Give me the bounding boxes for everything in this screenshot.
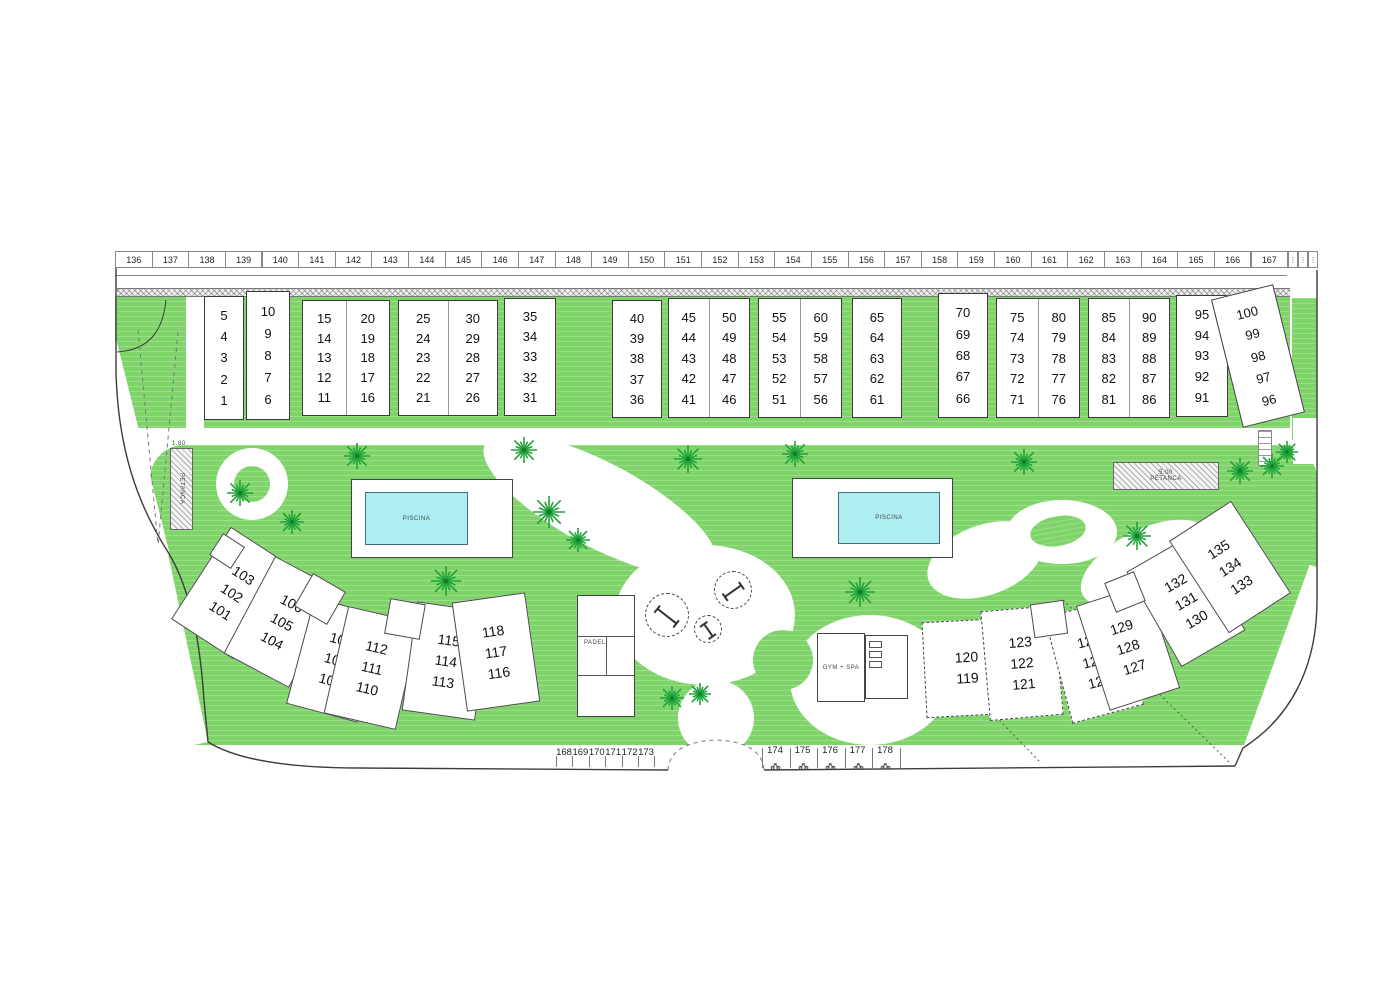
parking-row-underline <box>115 275 1287 276</box>
unit-number: 24 <box>416 332 430 345</box>
unit-number: 12 <box>317 371 331 384</box>
unit-number: 19 <box>361 332 375 345</box>
unit-number: 72 <box>1010 372 1024 385</box>
unit-number: 3 <box>220 351 227 364</box>
sunbed <box>869 651 882 658</box>
unit-number: 29 <box>466 332 480 345</box>
unit-column: 3534333231 <box>505 299 555 415</box>
unit-number: 90 <box>1142 311 1156 324</box>
scooter-icon <box>880 757 891 766</box>
playground-circle <box>694 615 722 643</box>
parking-tick <box>556 756 557 767</box>
unit-number: 2 <box>220 373 227 386</box>
parking-space-148: 148 <box>555 251 593 268</box>
unit-number: 61 <box>870 393 884 406</box>
building-block: 55545352516059585756 <box>758 298 842 418</box>
unit-number: 37 <box>630 373 644 386</box>
unit-number: 48 <box>722 352 736 365</box>
unit-number: 45 <box>682 311 696 324</box>
unit-number: 80 <box>1052 311 1066 324</box>
parking-space-150: 150 <box>628 251 666 268</box>
unit-number: 8 <box>264 349 271 362</box>
unit-number: 41 <box>682 393 696 406</box>
unit-number: 35 <box>523 310 537 323</box>
green-island-circle <box>753 630 813 690</box>
unit-number: 50 <box>722 311 736 324</box>
unit-column: 109876 <box>247 292 289 419</box>
unit-number: 18 <box>361 351 375 364</box>
parking-space-151: 151 <box>664 251 702 268</box>
unit-number: 82 <box>1102 372 1116 385</box>
parking-tick <box>654 756 655 767</box>
unit-number: 98 <box>1249 348 1266 364</box>
unit-number: 44 <box>682 331 696 344</box>
unit-column: 7574737271 <box>997 299 1038 417</box>
building-block: 75747372718079787776 <box>996 298 1080 418</box>
unit-number: 10 <box>261 305 275 318</box>
unit-number: 16 <box>361 391 375 404</box>
unit-number: 76 <box>1052 393 1066 406</box>
unit-number: 83 <box>1102 352 1116 365</box>
play-equipment <box>657 608 677 624</box>
parking-tick <box>817 748 818 768</box>
unit-column: 5049484746 <box>709 299 750 417</box>
parking-space-160: 160 <box>994 251 1032 268</box>
building-block: 3534333231 <box>504 298 556 416</box>
petanca-strip-dim-label: 1.80 <box>172 441 186 447</box>
unit-number: 86 <box>1142 393 1156 406</box>
gym-spa-label: GYM + SPA <box>823 665 860 671</box>
parking-space-139: 139 <box>225 251 263 268</box>
unit-number: 5 <box>220 309 227 322</box>
unit-number: 99 <box>1244 326 1261 342</box>
unit-number: 28 <box>466 351 480 364</box>
unit-column: 5554535251 <box>759 299 800 417</box>
parking-space-141: 141 <box>298 251 336 268</box>
unit-number: 69 <box>956 328 970 341</box>
unit-number: 63 <box>870 352 884 365</box>
unit-number: 87 <box>1142 372 1156 385</box>
parking-tick <box>622 756 623 767</box>
parking-space-142: 142 <box>335 251 373 268</box>
unit-number: 65 <box>870 311 884 324</box>
moto-parking-slot: ⋮ <box>1288 251 1298 268</box>
path-left-column <box>186 296 204 430</box>
moto-parking-slot: ⋮ <box>1308 251 1318 268</box>
unit-number: 57 <box>814 372 828 385</box>
unit-number: 95 <box>1195 308 1209 321</box>
unit-number: 93 <box>1195 349 1209 362</box>
parking-space-140: 140 <box>262 251 300 268</box>
building-slab: 118117116 <box>452 592 541 711</box>
unit-number: 53 <box>772 352 786 365</box>
sunbed <box>869 641 882 648</box>
playground-circle <box>714 571 752 609</box>
unit-number: 30 <box>466 312 480 325</box>
parking-space-162: 162 <box>1067 251 1105 268</box>
parking-tick <box>900 748 901 768</box>
parking-space-155: 155 <box>811 251 849 268</box>
unit-column: 54321 <box>205 297 243 419</box>
unit-number: 92 <box>1195 370 1209 383</box>
unit-column: 8079787776 <box>1038 299 1080 417</box>
parking-space-149: 149 <box>591 251 629 268</box>
parking-space-177: 177 <box>848 745 868 756</box>
unit-number: 27 <box>466 371 480 384</box>
parking-space-161: 161 <box>1031 251 1069 268</box>
parking-space-165: 165 <box>1177 251 1215 268</box>
unit-number: 75 <box>1010 311 1024 324</box>
unit-number: 15 <box>317 312 331 325</box>
stair-core <box>1030 600 1068 638</box>
moto-parking-slot: ⋮ <box>1298 251 1308 268</box>
unit-number: 31 <box>523 391 537 404</box>
unit-number: 119 <box>956 667 979 689</box>
unit-number: 47 <box>722 372 736 385</box>
scooter-icon <box>825 757 836 766</box>
scooter-icon <box>770 757 781 766</box>
parking-space-156: 156 <box>848 251 886 268</box>
unit-number: 13 <box>317 351 331 364</box>
unit-number: 84 <box>1102 331 1116 344</box>
unit-number: 6 <box>264 393 271 406</box>
unit-number: 100 <box>1235 303 1259 321</box>
unit-number: 70 <box>956 306 970 319</box>
unit-column: 2019181716 <box>346 301 390 415</box>
parking-space-166: 166 <box>1214 251 1252 268</box>
building-block: 85848382819089888786 <box>1088 298 1170 418</box>
unit-column: 1514131211 <box>303 301 346 415</box>
promenade-hatch-strip <box>117 288 1290 297</box>
padel-line-center <box>606 636 607 676</box>
unit-number: 34 <box>523 330 537 343</box>
unit-number: 42 <box>682 372 696 385</box>
unit-column: 9089888786 <box>1129 299 1170 417</box>
unit-number: 52 <box>772 372 786 385</box>
unit-column: 6059585756 <box>800 299 842 417</box>
padel-label: PADEL <box>584 640 606 646</box>
petanca-strip: PETANCA <box>170 448 193 530</box>
unit-number: 21 <box>416 391 430 404</box>
scooter-icon <box>853 757 864 766</box>
unit-number: 121 <box>1011 672 1036 695</box>
unit-column: 8584838281 <box>1089 299 1129 417</box>
unit-number: 22 <box>416 371 430 384</box>
building-block: 45444342415049484746 <box>668 298 750 418</box>
sunbed <box>869 661 882 668</box>
unit-number: 68 <box>956 349 970 362</box>
trellis <box>1258 430 1272 466</box>
building-block: 54321 <box>204 296 244 420</box>
gym-spa-building: GYM + SPA <box>817 633 865 702</box>
parking-tick <box>605 756 606 767</box>
unit-number: 73 <box>1010 352 1024 365</box>
parking-tick <box>872 748 873 768</box>
unit-number: 32 <box>523 371 537 384</box>
unit-number: 17 <box>361 371 375 384</box>
pool-left-water: PISCINA <box>365 492 468 545</box>
unit-number: 89 <box>1142 331 1156 344</box>
parking-space-178: 178 <box>875 745 895 756</box>
parking-space-175: 175 <box>793 745 813 756</box>
unit-number: 43 <box>682 352 696 365</box>
unit-column: 4039383736 <box>613 301 661 417</box>
parking-space-136: 136 <box>115 251 153 268</box>
unit-number: 85 <box>1102 311 1116 324</box>
unit-number: 20 <box>361 312 375 325</box>
unit-number: 94 <box>1195 329 1209 342</box>
parking-space-174: 174 <box>765 745 785 756</box>
parking-space-176: 176 <box>820 745 840 756</box>
unit-column: 3029282726 <box>448 301 498 415</box>
unit-number: 78 <box>1052 352 1066 365</box>
unit-number: 60 <box>814 311 828 324</box>
parking-space-158: 158 <box>921 251 959 268</box>
scooter-icon <box>798 757 809 766</box>
stair-core <box>384 598 426 640</box>
parking-space-167: 167 <box>1251 251 1289 268</box>
pool-right-water: PISCINA <box>838 492 940 544</box>
building-block: 25242322213029282726 <box>398 300 498 416</box>
parking-tick <box>589 756 590 767</box>
unit-column: 6564636261 <box>853 299 901 417</box>
unit-column: 4544434241 <box>669 299 709 417</box>
driveway-apron <box>668 740 765 800</box>
petanca-label: PETANCA <box>1150 476 1181 482</box>
unit-number: 96 <box>1260 392 1277 408</box>
petanca-court: 5.00 PETANCA <box>1113 462 1219 490</box>
building-block: 4039383736 <box>612 300 662 418</box>
path-donut-island <box>234 466 270 502</box>
unit-number: 79 <box>1052 331 1066 344</box>
building-block: 6564636261 <box>852 298 902 418</box>
building-block: 109876 <box>246 291 290 420</box>
unit-number: 33 <box>523 350 537 363</box>
parking-space-144: 144 <box>408 251 446 268</box>
parking-space-143: 143 <box>371 251 409 268</box>
unit-number: 51 <box>772 393 786 406</box>
petanca-strip-label: PETANCA <box>179 473 185 504</box>
parking-space-159: 159 <box>957 251 995 268</box>
parking-space-152: 152 <box>701 251 739 268</box>
unit-number: 64 <box>870 331 884 344</box>
unit-number: 39 <box>630 332 644 345</box>
parking-space-146: 146 <box>481 251 519 268</box>
parking-space-137: 137 <box>152 251 190 268</box>
unit-number: 1 <box>220 394 227 407</box>
parking-tick <box>845 748 846 768</box>
unit-number: 71 <box>1010 393 1024 406</box>
parking-tick <box>572 756 573 767</box>
unit-number: 25 <box>416 312 430 325</box>
unit-number: 81 <box>1102 393 1116 406</box>
play-equipment <box>724 584 742 597</box>
parking-tick <box>762 748 763 768</box>
unit-number: 14 <box>317 332 331 345</box>
unit-number: 40 <box>630 312 644 325</box>
unit-number: 122 <box>1009 652 1034 675</box>
unit-number: 77 <box>1052 372 1066 385</box>
unit-number: 62 <box>870 372 884 385</box>
unit-number: 91 <box>1195 391 1209 404</box>
unit-number: 38 <box>630 352 644 365</box>
unit-number: 97 <box>1255 370 1272 386</box>
parking-tick <box>638 756 639 767</box>
unit-number: 36 <box>630 393 644 406</box>
unit-number: 9 <box>264 327 271 340</box>
unit-number: 67 <box>956 370 970 383</box>
parking-space-157: 157 <box>884 251 922 268</box>
parking-space-163: 163 <box>1104 251 1142 268</box>
unit-number: 49 <box>722 331 736 344</box>
play-equipment <box>703 623 713 636</box>
parking-tick <box>790 748 791 768</box>
unit-number: 110 <box>354 676 380 701</box>
unit-number: 74 <box>1010 331 1024 344</box>
playground-circle <box>645 593 689 637</box>
unit-number: 58 <box>814 352 828 365</box>
building-block: 15141312112019181716 <box>302 300 390 416</box>
unit-number: 23 <box>416 351 430 364</box>
padel-line-bottom <box>578 675 634 676</box>
unit-column: 7069686766 <box>939 294 987 417</box>
site-plan: PISCINA PISCINA 5.00 PETANCA PETANCA 1.8… <box>0 0 1400 988</box>
pool-left-label: PISCINA <box>403 516 431 522</box>
unit-column: 2524232221 <box>399 301 448 415</box>
path-right-edge <box>1293 418 1317 464</box>
unit-number: 54 <box>772 331 786 344</box>
parking-space-173: 173 <box>636 747 656 758</box>
unit-number: 55 <box>772 311 786 324</box>
unit-number: 120 <box>954 646 978 668</box>
unit-number: 123 <box>1008 631 1033 654</box>
unit-number: 88 <box>1142 352 1156 365</box>
unit-number: 113 <box>431 670 456 694</box>
pool-right-label: PISCINA <box>875 515 903 521</box>
parking-space-145: 145 <box>445 251 483 268</box>
unit-number: 11 <box>318 391 332 404</box>
parking-space-147: 147 <box>518 251 556 268</box>
unit-number: 7 <box>264 371 271 384</box>
unit-number: 56 <box>814 393 828 406</box>
parking-space-154: 154 <box>774 251 812 268</box>
unit-number: 26 <box>466 391 480 404</box>
unit-number: 59 <box>814 331 828 344</box>
unit-number: 4 <box>220 330 227 343</box>
unit-number: 116 <box>486 661 511 685</box>
building-block: 7069686766 <box>938 293 988 418</box>
unit-number: 66 <box>956 392 970 405</box>
parking-space-138: 138 <box>188 251 226 268</box>
parking-space-164: 164 <box>1141 251 1179 268</box>
unit-number: 114 <box>433 649 458 673</box>
unit-number: 46 <box>722 393 736 406</box>
parking-space-153: 153 <box>738 251 776 268</box>
padel-court: PADEL <box>577 595 635 717</box>
